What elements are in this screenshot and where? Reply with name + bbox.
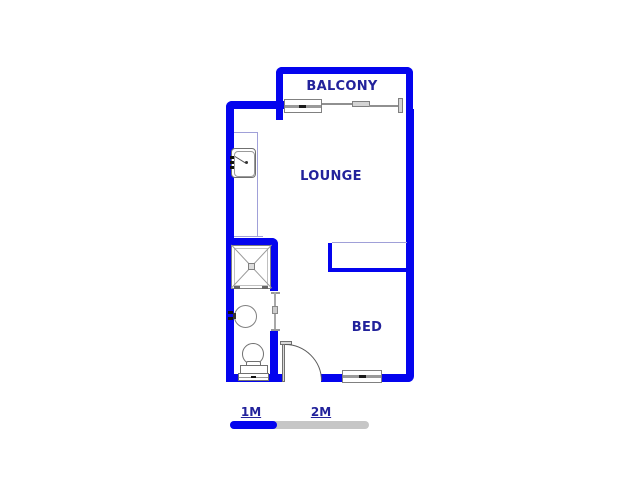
entrance-door-swing: [285, 344, 322, 381]
scale-bar-track: [230, 421, 369, 429]
bathroom-door-jamb-bottom: [271, 329, 280, 331]
cupboard-bottom-wall: [328, 268, 407, 272]
basin-spout: [233, 313, 236, 319]
basin-icon: [234, 305, 257, 328]
toilet-base-dash: [251, 376, 256, 378]
sink-tap-1: [230, 156, 234, 159]
shower-foot-left: [234, 286, 240, 289]
shower-drain: [248, 263, 255, 270]
scale-label-1m: 1M: [221, 406, 281, 419]
entrance-door-arc: [285, 344, 322, 381]
bathroom-door-handle: [272, 306, 278, 314]
sink-basin-inner: [234, 151, 255, 177]
bed-window-icon: [342, 370, 382, 383]
kitchen-counter-bottom-line: [234, 236, 263, 237]
scale-label-2m: 2M: [291, 406, 351, 419]
room-label-bed: BED: [317, 321, 417, 335]
sink-tap-2: [230, 161, 234, 164]
sliding-door-jamb: [398, 98, 403, 113]
room-label-lounge: LOUNGE: [281, 170, 381, 184]
sink-faucet-dot: [245, 161, 248, 164]
cupboard-front-line: [332, 242, 407, 243]
sliding-door-panel: [352, 101, 370, 107]
kitchen-counter-top-line: [234, 132, 258, 133]
room-label-balcony: BALCONY: [292, 80, 392, 94]
sink-tap-3: [230, 166, 234, 169]
scale-bar-1m-segment: [230, 421, 277, 429]
sliding-door-track-2: [369, 105, 400, 107]
floor-plan-canvas: BALCONY LOUNGE BED 1M 2M: [0, 0, 640, 480]
window-center-dash: [299, 105, 306, 108]
shower-foot-right: [262, 286, 268, 289]
window-center-dash: [359, 375, 366, 378]
kitchen-counter-edge-line: [257, 132, 258, 237]
toilet-base: [238, 373, 269, 381]
balcony-window-icon: [284, 99, 322, 113]
